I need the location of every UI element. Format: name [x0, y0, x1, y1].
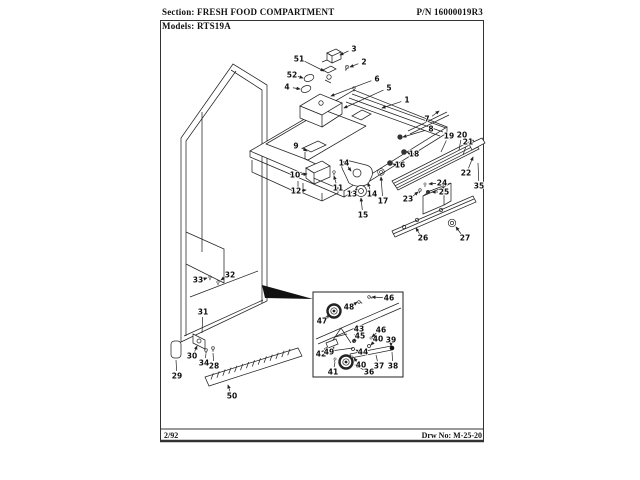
callout-leader-17	[381, 177, 383, 196]
callout-leader-4	[293, 88, 300, 89]
callout-leader-33	[204, 278, 207, 279]
callout-label-21: 21	[463, 138, 473, 147]
callout-label-33: 33	[193, 276, 203, 285]
manual-page: Section: FRESH FOOD COMPARTMENT P/N 1600…	[0, 0, 640, 480]
callout-label-1: 1	[404, 96, 409, 105]
callout-label-7: 7	[424, 115, 429, 124]
callout-leader-34	[205, 354, 206, 358]
callout-leader-23	[413, 192, 418, 196]
callout-label-2: 2	[361, 58, 366, 67]
callout-leader-50	[228, 385, 230, 391]
callout-leader-51	[304, 61, 324, 71]
callout-label-3: 3	[351, 45, 356, 54]
callout-leader-7	[432, 111, 439, 116]
toe-grille	[205, 348, 302, 386]
callout-label-46: 46	[376, 326, 386, 335]
rail-assembly	[392, 183, 476, 237]
callout-label-16: 16	[395, 161, 405, 170]
callout-label-11: 11	[333, 184, 343, 193]
callout-leader-15	[361, 198, 362, 210]
callout-label-39: 39	[386, 336, 396, 345]
callout-leader-52	[298, 76, 303, 78]
callout-label-28: 28	[209, 362, 219, 371]
callout-label-40: 40	[356, 361, 366, 370]
callout-label-8: 8	[428, 125, 433, 134]
callout-leader-14	[368, 183, 370, 189]
callout-leader-2	[350, 64, 358, 67]
callout-label-35: 35	[474, 182, 484, 191]
callout-label-12: 12	[291, 187, 301, 196]
callout-label-24: 24	[437, 179, 447, 188]
callout-label-6: 6	[374, 75, 379, 84]
callout-label-19: 19	[444, 132, 454, 141]
callout-label-27: 27	[460, 234, 470, 243]
callout-label-29: 29	[172, 372, 182, 381]
exploded-parts-diagram: 1234567891011121314141516171819202122232…	[0, 0, 640, 480]
callout-label-34: 34	[199, 359, 209, 368]
callout-label-37: 37	[374, 362, 384, 371]
callout-leader-19	[441, 140, 446, 152]
callout-label-25: 25	[439, 188, 449, 197]
callout-label-9: 9	[293, 142, 298, 151]
callout-label-46: 46	[384, 294, 394, 303]
callout-leader-24	[429, 183, 436, 184]
callout-label-23: 23	[403, 195, 413, 204]
callout-label-47: 47	[317, 317, 327, 326]
callout-label-44: 44	[358, 348, 368, 357]
callout-label-22: 22	[461, 169, 471, 178]
callout-label-15: 15	[358, 211, 368, 220]
callout-label-51: 51	[294, 55, 304, 64]
callout-label-49: 49	[324, 348, 334, 357]
callout-label-4: 4	[284, 83, 289, 92]
callout-label-32: 32	[225, 271, 235, 280]
callout-label-40: 40	[373, 335, 383, 344]
callout-label-14: 14	[367, 190, 377, 199]
callout-label-41: 41	[328, 368, 338, 377]
callout-label-30: 30	[187, 352, 197, 361]
callout-label-50: 50	[227, 392, 237, 401]
callout-label-48: 48	[344, 303, 354, 312]
callout-leader-12	[302, 190, 306, 191]
callout-leader-28	[213, 353, 214, 361]
callout-label-17: 17	[378, 197, 388, 206]
callout-leader-31	[202, 317, 203, 333]
callout-label-38: 38	[388, 362, 398, 371]
callout-leader-35	[478, 163, 479, 181]
callout-label-31: 31	[198, 308, 208, 317]
callout-label-26: 26	[418, 234, 428, 243]
callout-label-13: 13	[347, 190, 357, 199]
cabinet-bottom-parts	[171, 276, 219, 358]
callout-label-10: 10	[290, 171, 300, 180]
callout-label-18: 18	[409, 150, 419, 159]
callout-label-5: 5	[386, 84, 391, 93]
callout-leader-29	[176, 360, 177, 371]
callout-label-45: 45	[355, 332, 365, 341]
cabinet-outline	[181, 64, 267, 342]
callout-leader-22	[468, 157, 473, 168]
callout-label-14: 14	[339, 159, 349, 168]
top-small-parts	[300, 49, 355, 94]
callout-label-52: 52	[287, 71, 297, 80]
detail-callout-wedge	[262, 285, 313, 299]
